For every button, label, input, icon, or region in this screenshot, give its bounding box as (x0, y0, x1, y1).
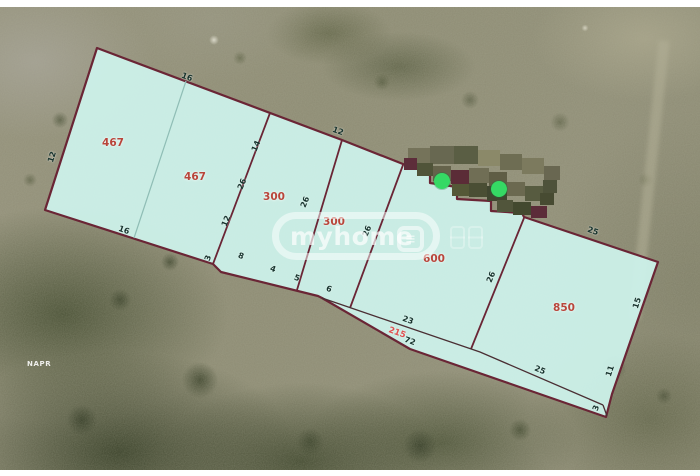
privacy-mosaic-block (540, 193, 554, 205)
parcel-area-label: 850 (553, 302, 575, 314)
poi-marker-dot (434, 173, 450, 189)
privacy-mosaic-block (430, 146, 454, 164)
privacy-mosaic-block (500, 154, 522, 170)
privacy-mosaic-block (531, 206, 547, 218)
myhome-watermark-text: myhome (290, 224, 413, 249)
privacy-mosaic-block (404, 158, 417, 170)
privacy-mosaic-block (478, 150, 500, 166)
privacy-mosaic-block (417, 163, 433, 176)
bottom-white-bar (0, 470, 700, 476)
cadastral-map-image[interactable]: 4674673003006008501612121614261226262625… (0, 0, 700, 476)
privacy-mosaic-block (522, 158, 544, 174)
privacy-mosaic-block (513, 202, 531, 215)
parcel-area-label: 467 (184, 171, 206, 183)
parcel-area-label: 300 (263, 191, 285, 203)
privacy-mosaic-block (469, 168, 489, 183)
myhome-logo-badge: ≡ (397, 226, 424, 252)
privacy-mosaic-block (497, 200, 513, 212)
napr-watermark: NAPR (27, 360, 51, 368)
poi-marker-dot (491, 181, 507, 197)
watermark-mini-badge (450, 226, 465, 249)
privacy-mosaic-block (451, 170, 469, 184)
top-white-bar (0, 0, 700, 7)
parcel-area-label: 467 (102, 137, 124, 149)
privacy-mosaic-block (469, 183, 487, 197)
privacy-mosaic-block (452, 184, 469, 196)
privacy-mosaic-block (507, 182, 525, 196)
watermark-mini-badge (468, 226, 483, 249)
privacy-mosaic-block (544, 166, 560, 180)
privacy-mosaic-block (454, 146, 478, 164)
privacy-mosaic-block (543, 180, 557, 193)
